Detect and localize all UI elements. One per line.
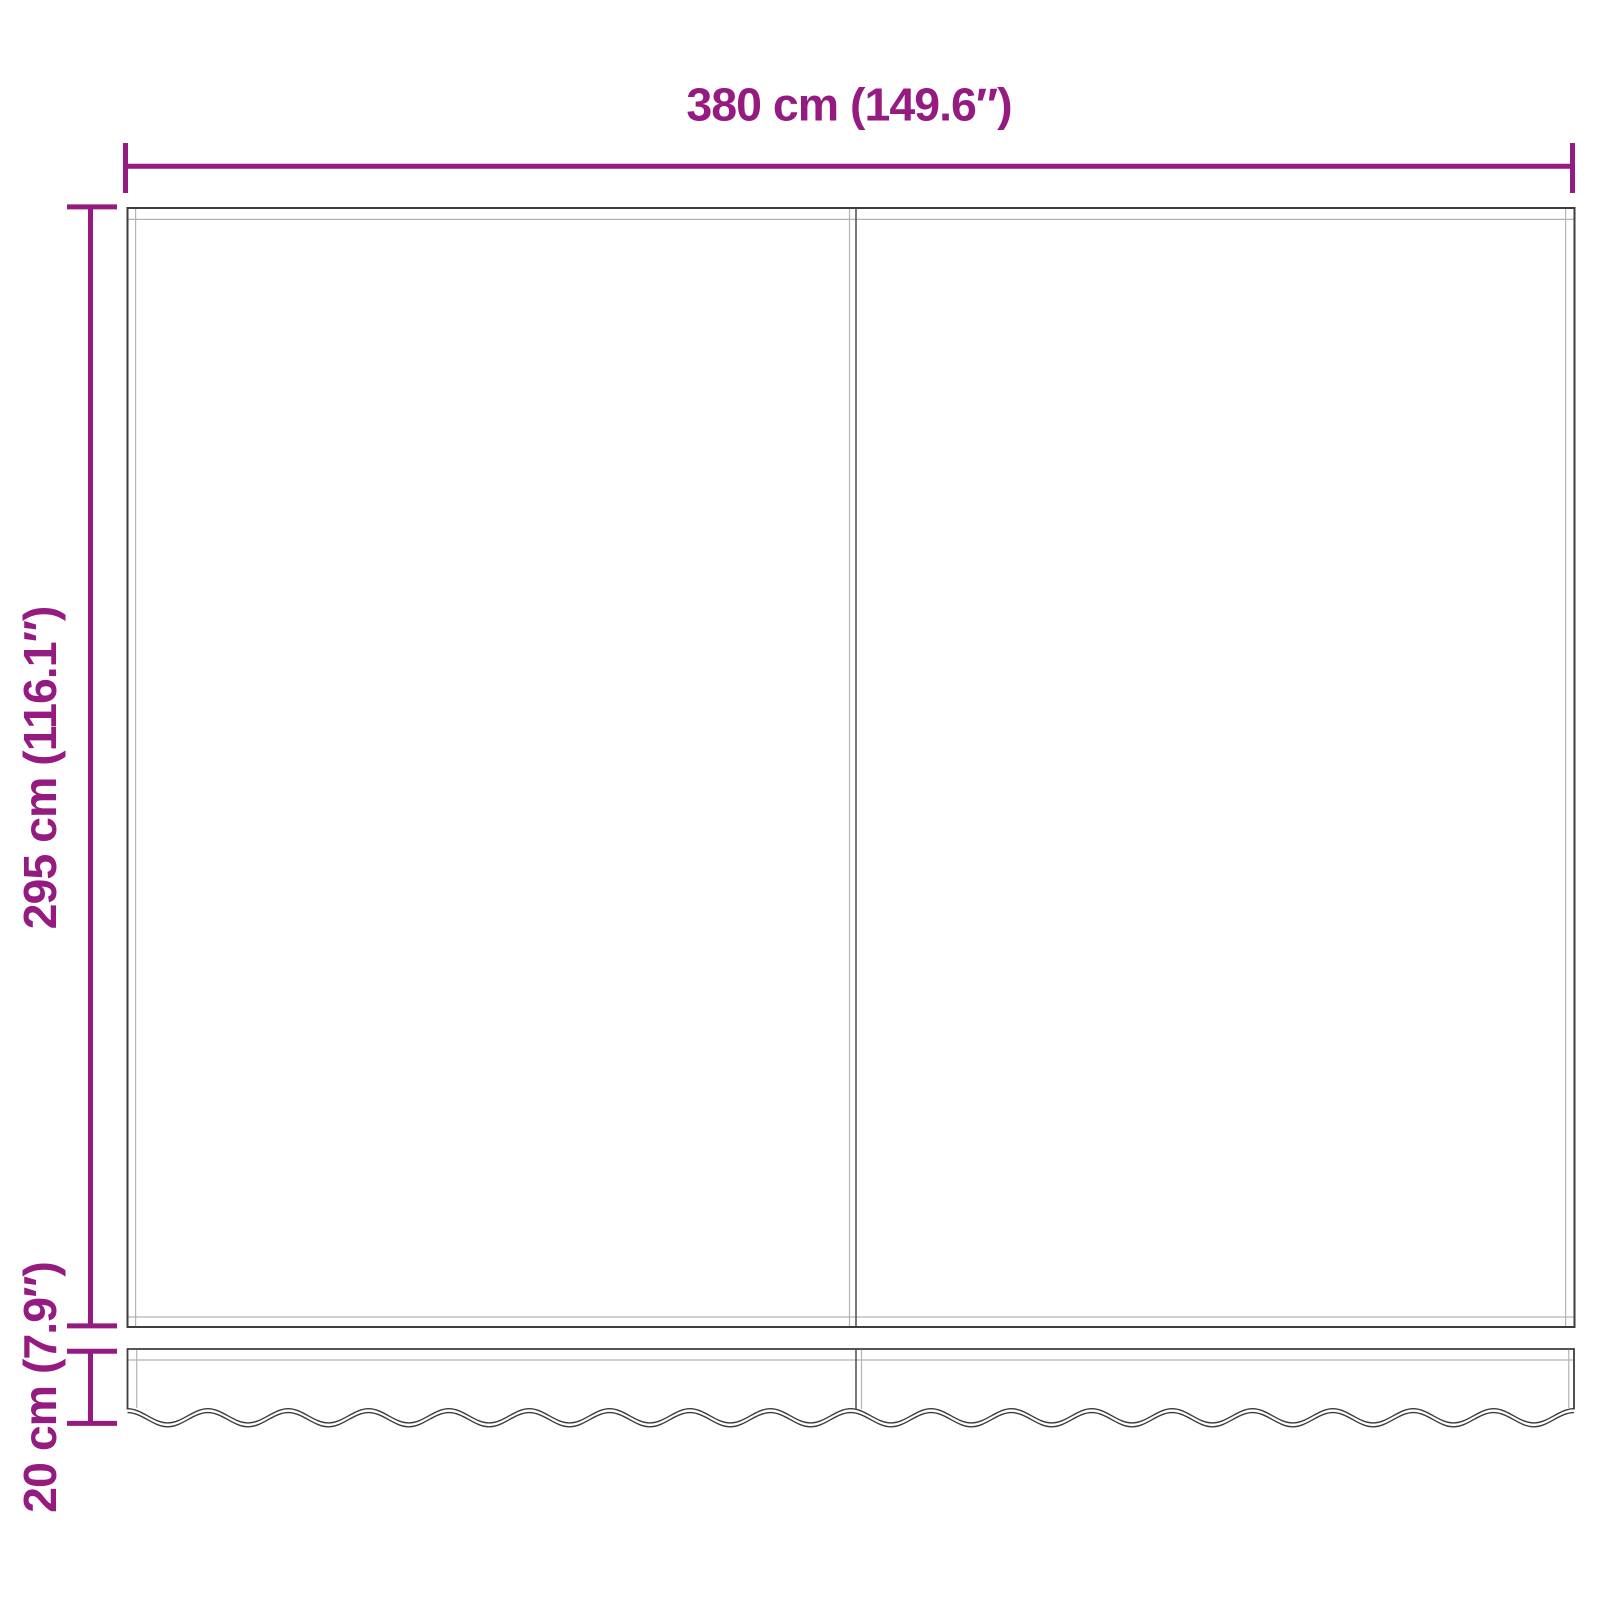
svg-text:380 cm (149.6″): 380 cm (149.6″) [686,79,1011,131]
svg-text:295 cm (116.1″): 295 cm (116.1″) [14,607,66,930]
svg-text:20 cm (7.9″): 20 cm (7.9″) [14,1262,66,1513]
